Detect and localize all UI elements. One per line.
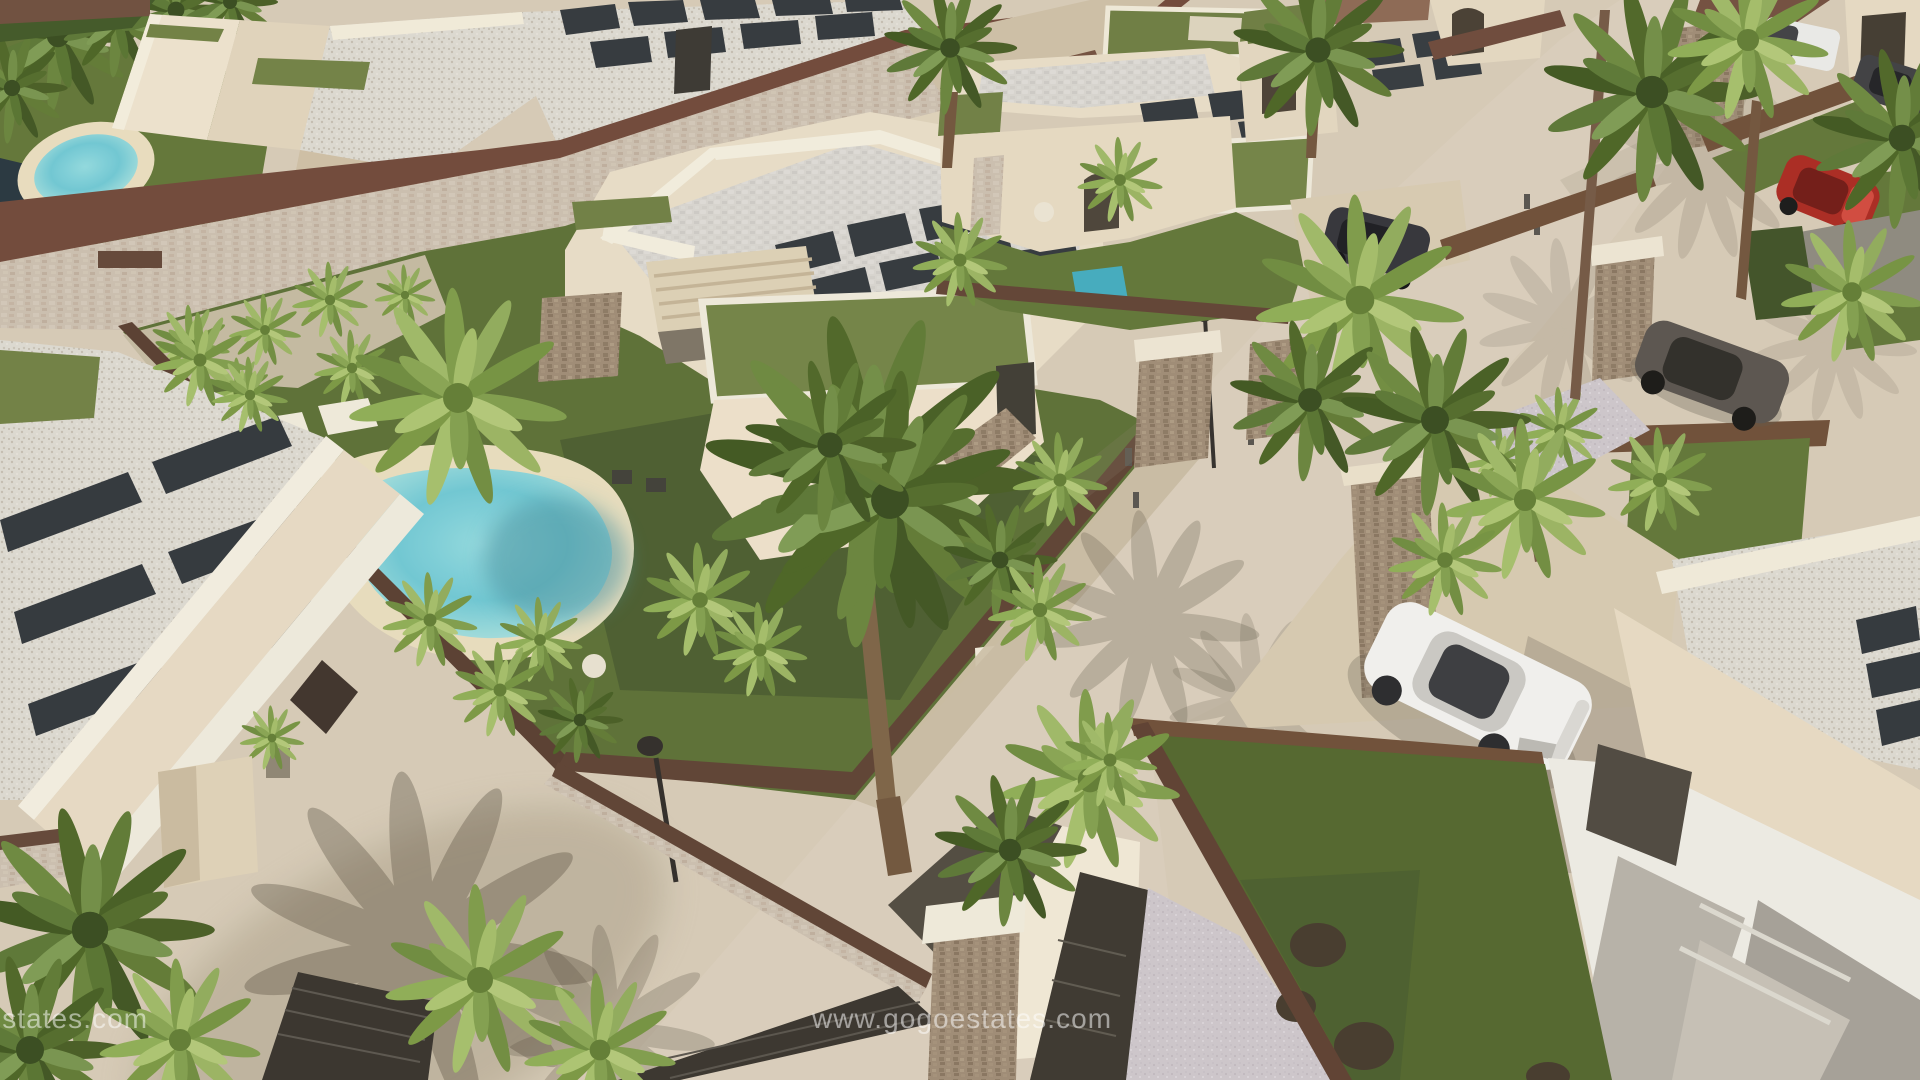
svg-text:www.gogoestates.com: www.gogoestates.com — [0, 1003, 148, 1034]
svg-text:www.gogoestates.com: www.gogoestates.com — [811, 1003, 1112, 1034]
